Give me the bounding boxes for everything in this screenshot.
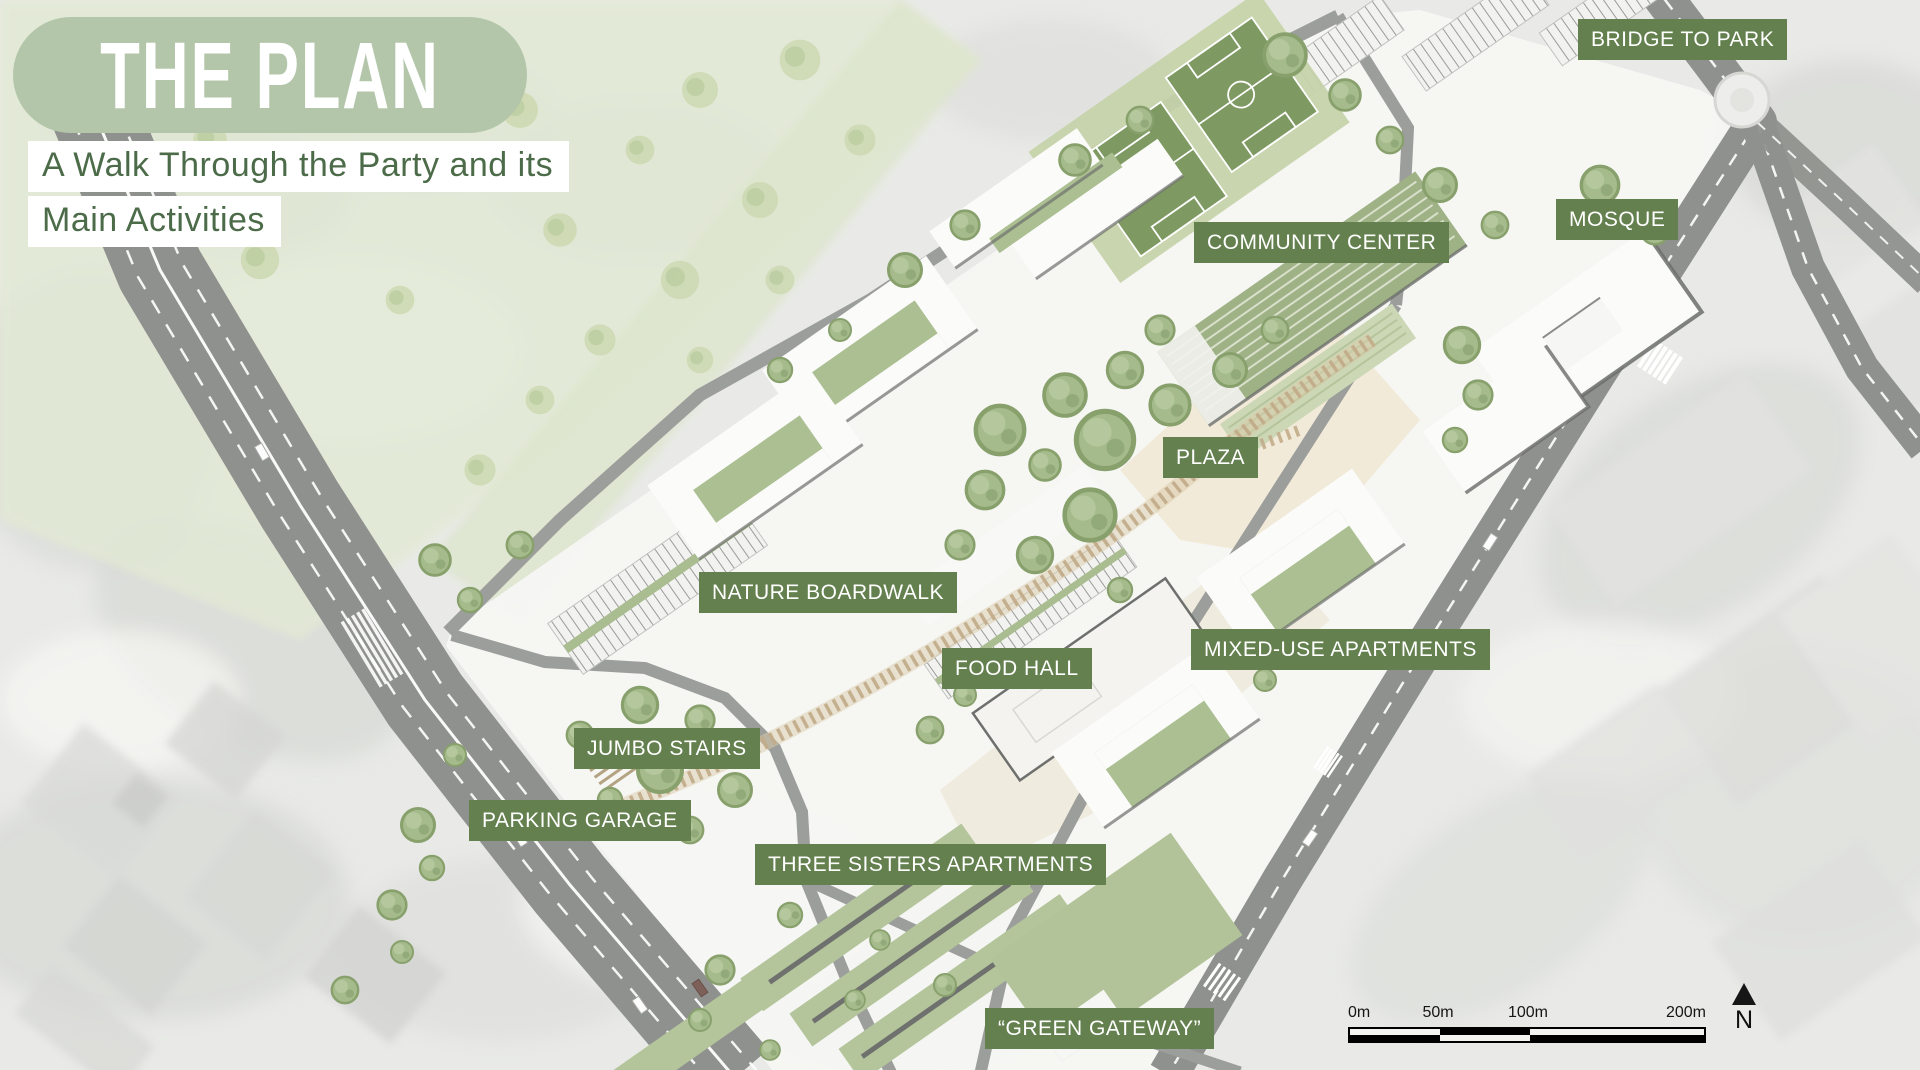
- scale-bar: 0m 50m 100m 200m: [1348, 1004, 1706, 1043]
- subtitle-line-1: A Walk Through the Party and its: [28, 141, 569, 192]
- scale-tick-0m: 0m: [1348, 1004, 1370, 1022]
- north-arrow: N: [1722, 983, 1766, 1035]
- title-pill: THE PLAN: [13, 17, 527, 133]
- map-label-jumbo-stairs: JUMBO STAIRS: [574, 728, 760, 769]
- map-label-green-gateway: “GREEN GATEWAY”: [985, 1008, 1214, 1049]
- map-label-mixed-use-apartments: MIXED-USE APARTMENTS: [1191, 629, 1490, 670]
- scale-tick-100m: 100m: [1508, 1004, 1548, 1022]
- page-title: THE PLAN: [100, 21, 440, 130]
- north-label: N: [1722, 1006, 1766, 1035]
- map-label-plaza: PLAZA: [1163, 437, 1258, 478]
- map-label-community-center: COMMUNITY CENTER: [1194, 222, 1449, 263]
- scale-bar-graphic: [1348, 1027, 1706, 1043]
- slide-subtitle: A Walk Through the Party and its Main Ac…: [28, 141, 569, 247]
- map-label-mosque: MOSQUE: [1556, 199, 1678, 240]
- north-arrow-icon: [1732, 983, 1756, 1005]
- map-label-nature-boardwalk: NATURE BOARDWALK: [699, 572, 957, 613]
- slide: BRIDGE TO PARKMOSQUECOMMUNITY CENTERPLAZ…: [0, 0, 1920, 1070]
- map-label-parking-garage: PARKING GARAGE: [469, 800, 691, 841]
- scale-tick-200m: 200m: [1666, 1004, 1706, 1022]
- scale-tick-50m: 50m: [1422, 1004, 1453, 1022]
- map-label-bridge-to-park: BRIDGE TO PARK: [1578, 19, 1787, 60]
- scale-bar-ticks: 0m 50m 100m 200m: [1348, 1004, 1706, 1025]
- subtitle-line-2: Main Activities: [28, 196, 281, 247]
- map-label-three-sisters-apartments: THREE SISTERS APARTMENTS: [755, 844, 1106, 885]
- map-label-food-hall: FOOD HALL: [942, 648, 1092, 689]
